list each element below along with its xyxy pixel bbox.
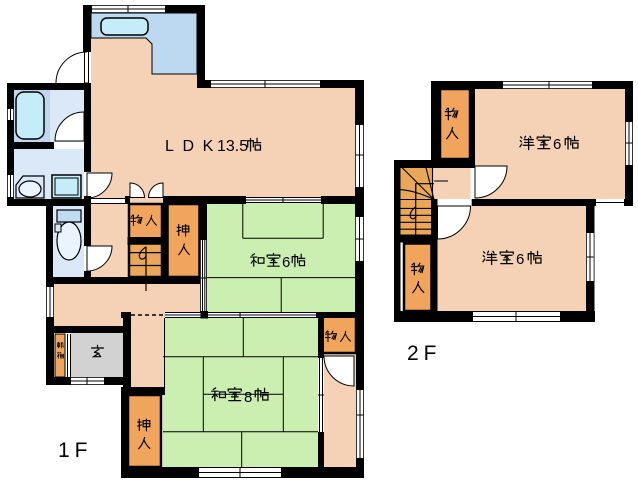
svg-text:13.5: 13.5 [217,138,248,155]
svg-text:6: 6 [516,251,524,268]
svg-text:2F: 2F [407,342,442,365]
svg-text:1F: 1F [58,439,93,462]
svg-text:6: 6 [282,254,290,271]
svg-text:8: 8 [244,389,252,406]
svg-text:6: 6 [553,136,561,153]
svg-text:LDK: LDK [165,138,222,155]
